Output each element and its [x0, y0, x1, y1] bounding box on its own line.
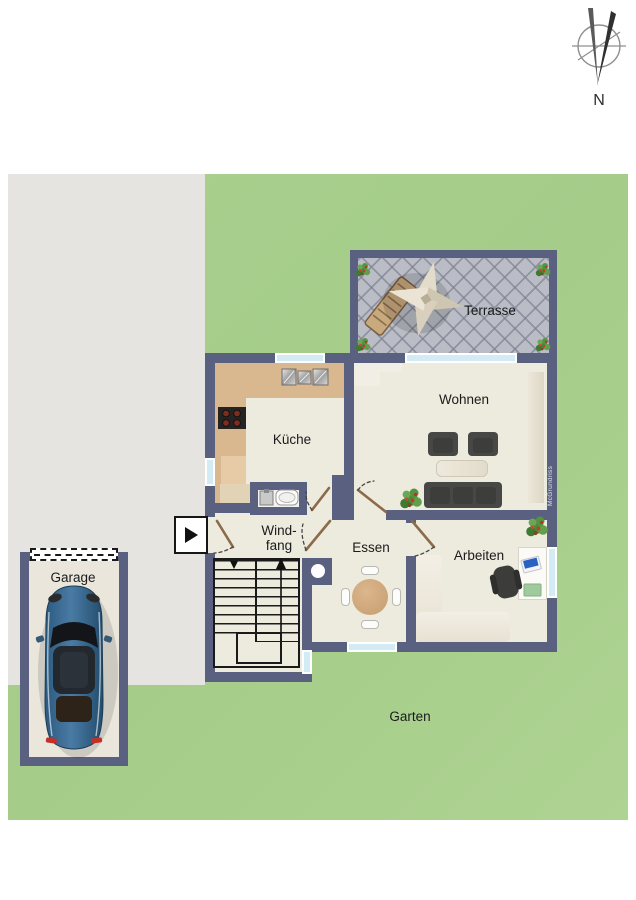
flower-pot: [356, 338, 370, 351]
label-windfang-line1: Wind-: [261, 523, 296, 538]
label-windfang-line2: fang: [261, 538, 296, 553]
label-arbeiten: Arbeiten: [454, 548, 504, 563]
label-terrasse: Terrasse: [464, 303, 516, 318]
compass-rose: N: [572, 8, 626, 109]
stove: [218, 407, 246, 429]
desk-pad: [524, 584, 541, 596]
plant: [400, 489, 422, 509]
label-essen: Essen: [352, 540, 390, 555]
label-garten: Garten: [389, 709, 430, 724]
plant: [526, 517, 548, 537]
wc-toilet: [276, 490, 298, 505]
label-windfang: Wind- fang: [261, 523, 296, 553]
flower-pot: [536, 338, 550, 351]
plan-overlay: N: [0, 0, 636, 900]
label-wohnen: Wohnen: [439, 392, 489, 407]
label-kueche: Küche: [273, 432, 311, 447]
doors: [214, 481, 434, 556]
laptop: [521, 556, 542, 573]
watermark-text: McGrundriss: [547, 454, 554, 506]
car: [35, 586, 118, 758]
office-chair: [488, 563, 524, 601]
chimney-block: [354, 363, 402, 386]
flower-pot: [536, 263, 550, 276]
parasol: [377, 253, 471, 344]
label-garage: Garage: [50, 570, 95, 585]
flower-pot: [356, 263, 370, 276]
stair-direction-arrows: [230, 558, 286, 634]
floor-plan: N: [0, 0, 636, 900]
washbasin: [260, 489, 273, 505]
compass-n-label: N: [593, 92, 605, 109]
kitchen-sink: [282, 369, 328, 385]
